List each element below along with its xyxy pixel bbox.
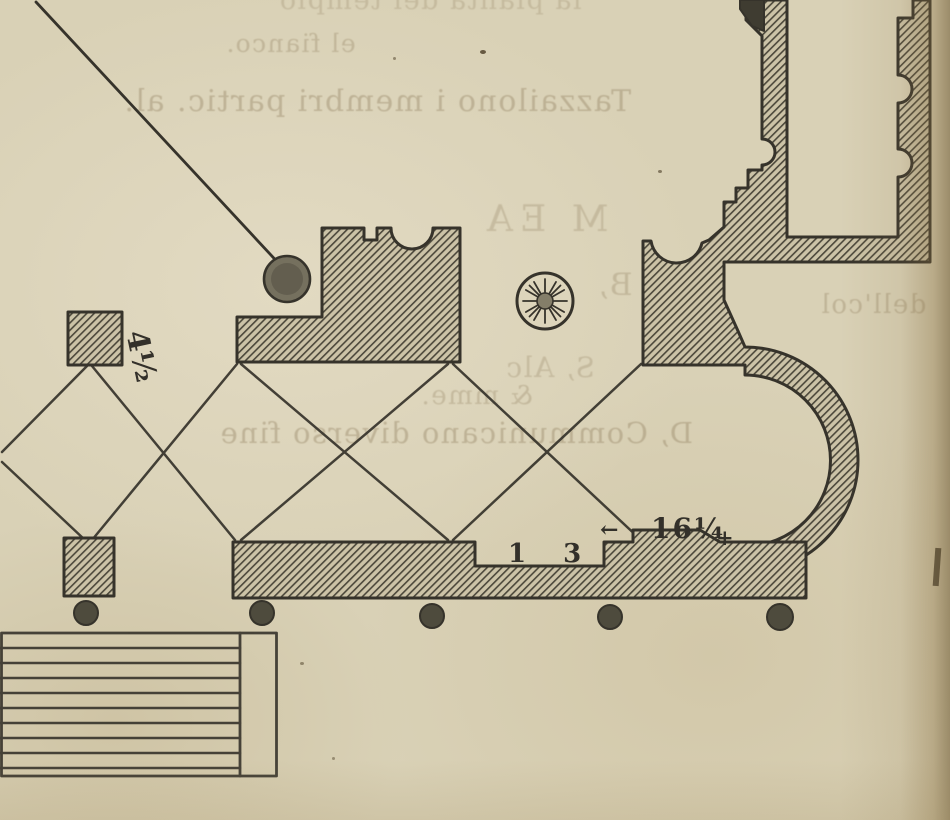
leader-line xyxy=(36,2,283,268)
column-circle-core xyxy=(271,263,303,295)
vault-rib-lines xyxy=(2,364,641,540)
floor-plan-engraving: 4½ 1 3 ← 16¼ + xyxy=(0,0,950,820)
page-edge-mark xyxy=(933,548,942,586)
column-dot-row xyxy=(74,601,793,630)
column-dot xyxy=(767,604,793,630)
column-dot xyxy=(598,605,622,629)
ink-speck xyxy=(393,57,396,60)
column-dot xyxy=(420,604,444,628)
rosette-column xyxy=(517,273,573,329)
vault-rib xyxy=(2,366,87,452)
vault-rib xyxy=(2,462,85,540)
dim-16quarter-label: 16¼ xyxy=(651,512,725,545)
ink-speck xyxy=(300,662,304,665)
arrow-left-glyph: ← xyxy=(600,517,618,543)
stair-treads xyxy=(0,648,240,768)
dim-13-label: 1 3 xyxy=(508,539,595,569)
scanned-book-page: la pianta del tempio el fianco. Tazzailo… xyxy=(0,0,950,820)
dim-4half-label: 4½ xyxy=(118,327,163,385)
staircase xyxy=(0,633,277,776)
right-wall-complex xyxy=(643,0,930,573)
plus-mark: + xyxy=(716,525,734,550)
wall-cap-dark xyxy=(740,0,764,31)
column-dot xyxy=(74,601,98,625)
column-dot xyxy=(250,601,274,625)
vault-rib xyxy=(92,364,237,540)
ink-speck xyxy=(332,757,335,760)
ink-speck xyxy=(658,170,662,173)
ink-speck xyxy=(480,50,486,54)
pier-small-top xyxy=(68,312,122,365)
pier-small-bottom xyxy=(64,538,114,596)
rosette-hub xyxy=(537,293,553,309)
